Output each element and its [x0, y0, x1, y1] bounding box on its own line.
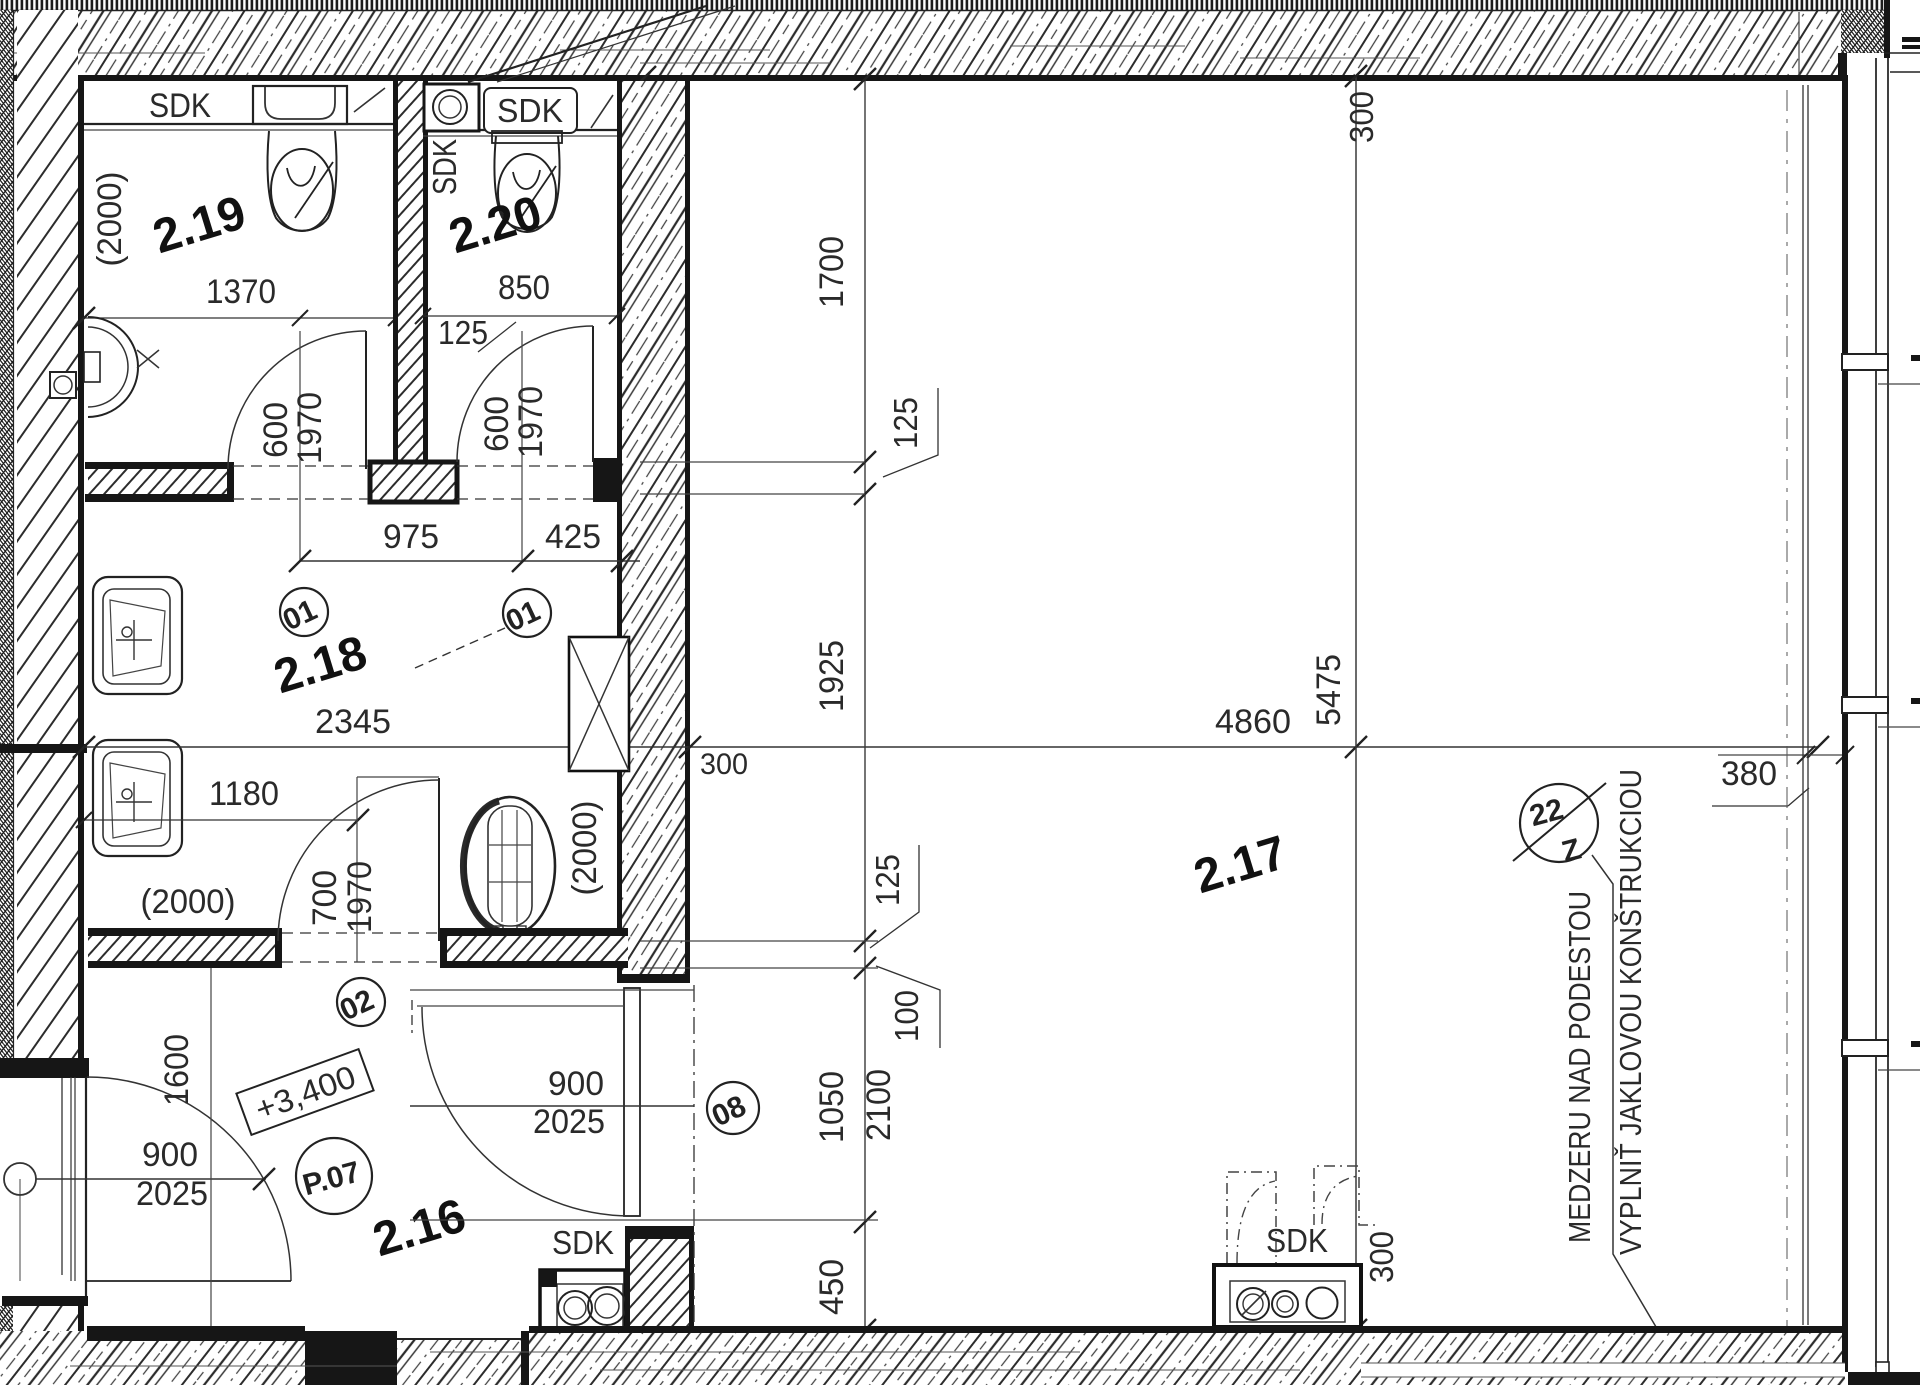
svg-text:4860: 4860 [1215, 703, 1291, 741]
svg-text:2025: 2025 [533, 1103, 605, 1141]
svg-text:1925: 1925 [813, 640, 851, 712]
svg-text:975: 975 [383, 518, 439, 556]
svg-text:300: 300 [1343, 91, 1380, 143]
svg-text:100: 100 [888, 990, 925, 1042]
svg-text:SDK: SDK [497, 92, 563, 129]
svg-text:VYPLNIŤ JAKLOVOU KONŠTRUKCIOU: VYPLNIŤ JAKLOVOU KONŠTRUKCIOU [1613, 769, 1648, 1255]
svg-text:1600: 1600 [158, 1034, 196, 1106]
svg-text:2345: 2345 [315, 703, 391, 741]
svg-text:1180: 1180 [209, 775, 279, 813]
svg-text:1970: 1970 [512, 386, 550, 458]
svg-text:1970: 1970 [341, 861, 379, 933]
svg-text:SDK: SDK [1266, 1222, 1328, 1259]
svg-text:900: 900 [548, 1065, 604, 1103]
svg-text:SDK: SDK [552, 1224, 614, 1261]
svg-text:1700: 1700 [813, 236, 851, 308]
svg-text:5475: 5475 [1310, 654, 1348, 726]
svg-text:(2000): (2000) [91, 172, 129, 267]
svg-text:850: 850 [498, 269, 550, 307]
svg-text:380: 380 [1721, 755, 1777, 793]
svg-text:MEDZERU NAD PODESTOU: MEDZERU NAD PODESTOU [1562, 891, 1597, 1243]
svg-text:125: 125 [887, 397, 924, 449]
svg-text:450: 450 [813, 1259, 851, 1315]
svg-text:1050: 1050 [813, 1071, 851, 1143]
svg-text:(2000): (2000) [566, 801, 604, 896]
svg-text:425: 425 [545, 518, 601, 556]
svg-text:300: 300 [700, 748, 748, 781]
svg-text:600: 600 [478, 396, 516, 452]
svg-text:600: 600 [257, 402, 295, 458]
svg-text:900: 900 [142, 1136, 198, 1174]
svg-text:SDK: SDK [426, 139, 463, 195]
svg-text:SDK: SDK [149, 87, 211, 125]
svg-text:700: 700 [306, 870, 344, 926]
svg-text:1970: 1970 [291, 392, 329, 464]
svg-text:2025: 2025 [136, 1175, 208, 1213]
svg-text:300: 300 [1363, 1231, 1400, 1283]
svg-text:125: 125 [438, 314, 488, 351]
svg-text:1370: 1370 [206, 273, 276, 311]
svg-text:(2000): (2000) [141, 883, 236, 921]
svg-text:125: 125 [869, 854, 906, 906]
svg-text:2100: 2100 [860, 1069, 898, 1141]
